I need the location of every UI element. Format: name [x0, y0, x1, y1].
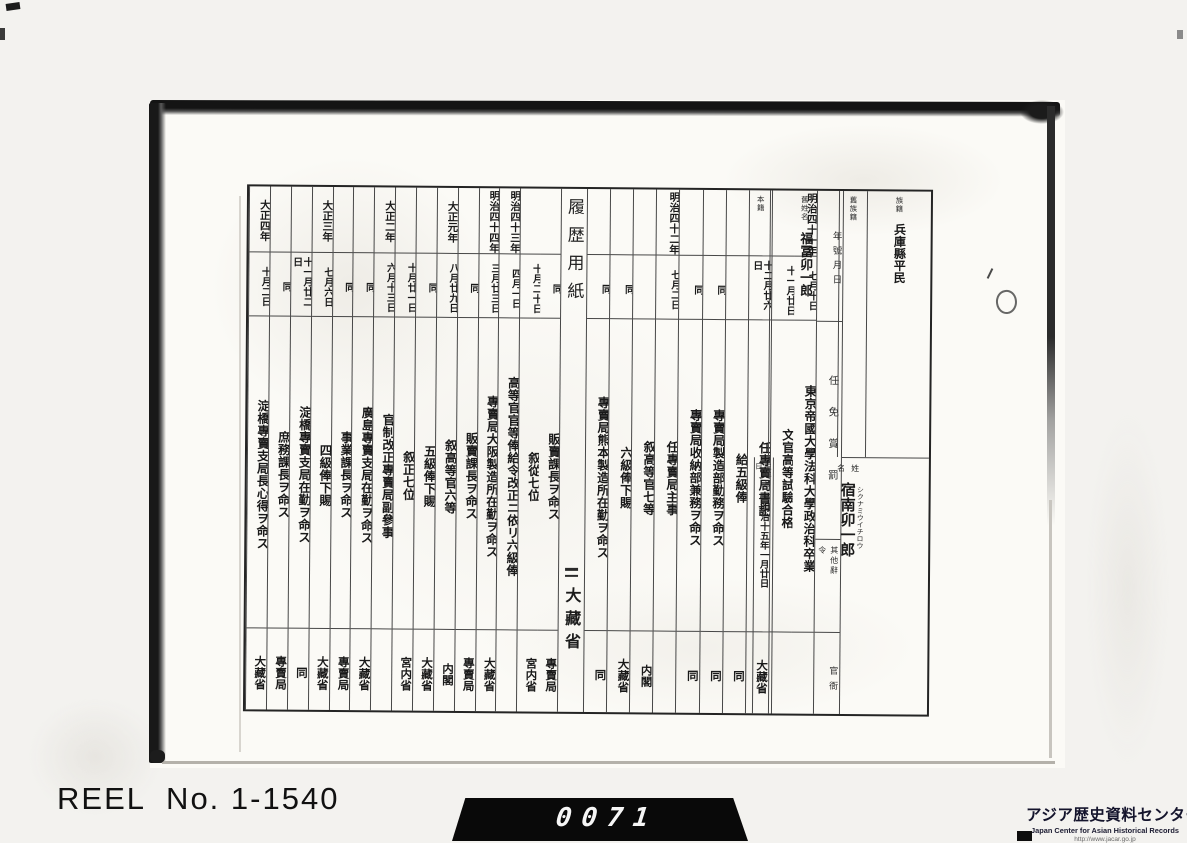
film-edge-right	[1047, 106, 1055, 526]
zokuseki-label: 族籍	[895, 191, 904, 213]
frame-counter-digits: 0071	[554, 803, 660, 833]
entry-day-cell: 七月六日	[312, 253, 332, 317]
scan-speck	[0, 28, 5, 40]
entry-office-cell: 專賣局	[267, 627, 288, 709]
honseki-label: 本籍	[756, 190, 765, 212]
entry-action-cell: 販賣課長ヲ命ス	[455, 318, 477, 629]
entry-day-cell: 十月廿一日	[395, 253, 415, 317]
entry-action-cell: 任專賣局主事	[654, 320, 679, 631]
film-edge-top	[150, 100, 1060, 117]
personal-info-block: 族籍 兵庫縣平民 舊族籍 舊姓名 福冨卯一郎 本籍 姓名 シクナミウイチロウ	[839, 191, 931, 715]
entry-office-cell	[371, 628, 392, 710]
jacar-logo-url: http://www.jacar.go.jp	[1026, 836, 1184, 843]
entry-action-cell: 事業課長ヲ命ス	[330, 317, 352, 628]
entry-office-cell: 同	[584, 630, 607, 712]
zokuseki-value: 兵庫縣平民	[893, 213, 906, 283]
frame-counter-device: 0071	[452, 798, 748, 841]
entry-office-cell	[653, 631, 676, 713]
entry-office-cell	[496, 629, 517, 711]
birthdate-cell: 生年月日 明治十五年一月廿日	[752, 457, 773, 713]
entry-year-cell: 明治四十三年	[500, 188, 520, 254]
rireki-form: 同販賣課長ヲ命ス專賣局十月二十日叙從七位宮内省明治四十三年四月一日高等官官等俸給…	[243, 184, 933, 716]
entry-office-cell: 内閣	[434, 629, 455, 711]
entry-office-cell: 宮内省	[392, 628, 413, 710]
entry-office-cell: 大藏省	[476, 629, 497, 711]
entry-day-cell: 十一月廿二日	[291, 253, 311, 317]
entry-day-cell: 同	[416, 254, 436, 318]
entry-action-cell: 專賣局收納部兼務ヲ命ス	[677, 320, 702, 631]
entry-year-cell	[588, 189, 611, 255]
birthdate-label: 生年月日	[754, 457, 772, 494]
form-title-column: 履歴用紙 大藏省	[557, 189, 587, 712]
entry-action-cell: 專賣局製造部勤務ヲ命ス	[700, 320, 725, 631]
entry-office-cell: 大藏省	[607, 630, 630, 712]
entry-action-cell: 叙高等官七等	[631, 319, 656, 630]
entry-action-cell: 五級俸下賜	[414, 318, 436, 629]
entry-year-cell	[521, 188, 541, 254]
reel-number-label: REEL No. 1-1540	[57, 781, 339, 817]
entry-office-cell: 大藏省	[246, 627, 267, 709]
entry-day-cell: 同	[587, 255, 610, 319]
entry-office-cell: 内閣	[630, 630, 653, 712]
entry-office-cell: 專賣局	[330, 628, 351, 710]
old-name-value: 福冨卯一郎	[797, 221, 811, 296]
entry-year-cell	[291, 187, 311, 253]
entry-action-cell: 四級俸下賜	[309, 317, 331, 628]
entry-day-cell: 同	[610, 255, 633, 319]
old-zokuseki-cell: 舊族籍	[837, 191, 867, 457]
scan-speck	[1177, 30, 1183, 39]
personal-bottom-row: 姓名 シクナミウイチロウ 宿南卯一郎 生年月日 明治十五年一月廿日	[840, 458, 929, 715]
jacar-logo: アジア歴史資料センター Japan Center for Asian Histo…	[1026, 803, 1184, 843]
entry-year-cell	[333, 187, 353, 253]
jacar-logo-japanese: アジア歴史資料センター	[1026, 803, 1184, 825]
paper-crease	[239, 196, 241, 752]
entry-day-cell: 八月廿九日	[437, 254, 457, 318]
entry-day-cell: 同	[353, 253, 373, 317]
logo-corner-mark	[1017, 831, 1032, 841]
entry-day-cell: 七月二日	[656, 256, 679, 320]
entry-day-cell: 十月二十日	[520, 254, 540, 318]
entry-action-cell: 廣島專賣支局在勤ヲ命ス	[351, 317, 373, 628]
name-label: 姓名	[837, 458, 865, 474]
entry-office-cell: 同	[288, 628, 309, 710]
entry-action-cell: 叙高等官六等	[434, 318, 456, 629]
entry-year-cell: 大正三年	[312, 187, 332, 253]
entry-day-cell: 同	[458, 254, 478, 318]
entry-year-cell	[417, 188, 437, 254]
entry-office-cell: 專賣局	[455, 629, 476, 711]
entry-year-cell: 明治四十二年	[657, 190, 680, 256]
entry-office-cell: 專賣局	[537, 630, 558, 712]
entry-office-cell: 同	[676, 631, 699, 713]
entry-year-cell	[611, 189, 634, 255]
entry-office-cell: 大藏省	[350, 628, 371, 710]
entry-day-cell: 三月廿三日	[479, 254, 499, 318]
entry-action-cell: 專賣局大阪製造所在勤ヲ命ス	[476, 318, 498, 629]
name-cell: 姓名 シクナミウイチロウ 宿南卯一郎	[771, 457, 929, 714]
entry-year-cell	[541, 189, 561, 255]
entry-day-cell: 同	[679, 256, 702, 320]
entry-day-cell: 四月一日	[499, 254, 519, 318]
entry-action-cell: 官制改正專賣局副參事	[372, 317, 394, 628]
entry-day-cell: 同	[270, 253, 290, 317]
entry-year-cell	[680, 190, 703, 256]
entry-day-cell: 同	[333, 253, 353, 317]
entry-year-cell: 大正二年	[375, 187, 395, 253]
scan-speck	[6, 2, 21, 11]
entry-year-cell: 明治四十四年	[479, 188, 499, 254]
name-furigana: シクナミウイチロウ	[855, 482, 863, 557]
form-title: 履歴用紙	[561, 189, 587, 310]
entry-office-cell: 同	[723, 631, 746, 713]
entry-year-cell	[458, 188, 478, 254]
entry-action-cell: 專賣局熊本製造所在勤ヲ命ス	[585, 319, 610, 630]
entry-year-cell	[726, 190, 749, 256]
entry-action-cell: 叙正七位	[393, 317, 415, 628]
scan-speck	[150, 750, 165, 763]
entry-day-cell	[633, 255, 656, 319]
entries-left: 同販賣課長ヲ命ス專賣局十月二十日叙從七位宮内省明治四十三年四月一日高等官官等俸給…	[245, 186, 561, 711]
film-edge-right-faint	[1049, 500, 1052, 758]
entry-day-cell: 六月十三日	[374, 253, 394, 317]
birthdate-value: 明治十五年一月廿日	[758, 494, 769, 588]
old-name-cell: 舊姓名 福冨卯一郎	[768, 190, 839, 457]
entry-action-cell: 高等官官等俸給令改正ニ依リ六級俸	[497, 318, 519, 629]
entry-action-cell: 淀橋專賣支局在勤ヲ命ス	[288, 317, 310, 628]
entry-year-cell	[703, 190, 726, 256]
entry-year-cell	[396, 187, 416, 253]
entry-office-cell: 大藏省	[309, 628, 330, 710]
entry-day-cell	[726, 256, 749, 320]
entry-office-cell: 宮内省	[517, 629, 538, 711]
old-zokuseki-label: 舊族籍	[849, 191, 858, 222]
entry-day-cell: 十月二日	[249, 252, 269, 316]
entry-year-cell	[634, 189, 657, 255]
sheet-edge-bottom	[162, 761, 1055, 764]
entry-action-cell: 淀橋專賣支局長心得ヲ命ス	[247, 316, 269, 627]
old-name-label: 舊姓名	[800, 191, 809, 222]
entry-action-cell: 給五級俸	[723, 320, 748, 631]
entry-day-cell: 同	[540, 255, 560, 319]
personal-top-row: 族籍 兵庫縣平民 舊族籍 舊姓名 福冨卯一郎 本籍	[842, 191, 931, 459]
entry-year-cell	[354, 187, 374, 253]
entry-action-cell: 庶務課長ヲ命ス	[268, 316, 290, 627]
entry-action-cell: 六級俸下賜	[608, 319, 633, 630]
title-divider	[565, 568, 578, 577]
entry-year-cell: 大正元年	[437, 188, 457, 254]
entry-action-cell: 販賣課長ヲ命ス	[538, 319, 560, 630]
ministry-name: 大藏省	[559, 577, 584, 656]
name-value: 宿南卯一郎	[838, 482, 856, 557]
entry-year-cell: 大正四年	[250, 186, 270, 252]
film-edge-left	[149, 103, 166, 763]
entry-action-cell: 叙從七位	[518, 318, 540, 629]
entry-office-cell: 大藏省	[413, 629, 434, 711]
zokuseki-cell: 族籍 兵庫縣平民	[865, 191, 931, 457]
jacar-logo-english: Japan Center for Asian Historical Record…	[1026, 826, 1184, 835]
entry-day-cell: 同	[703, 256, 726, 320]
entry-office-cell: 同	[699, 631, 722, 713]
film-edge-top-right-blob	[1020, 100, 1064, 124]
honseki-cell: 本籍	[750, 190, 770, 456]
entry-year-cell	[271, 187, 291, 253]
